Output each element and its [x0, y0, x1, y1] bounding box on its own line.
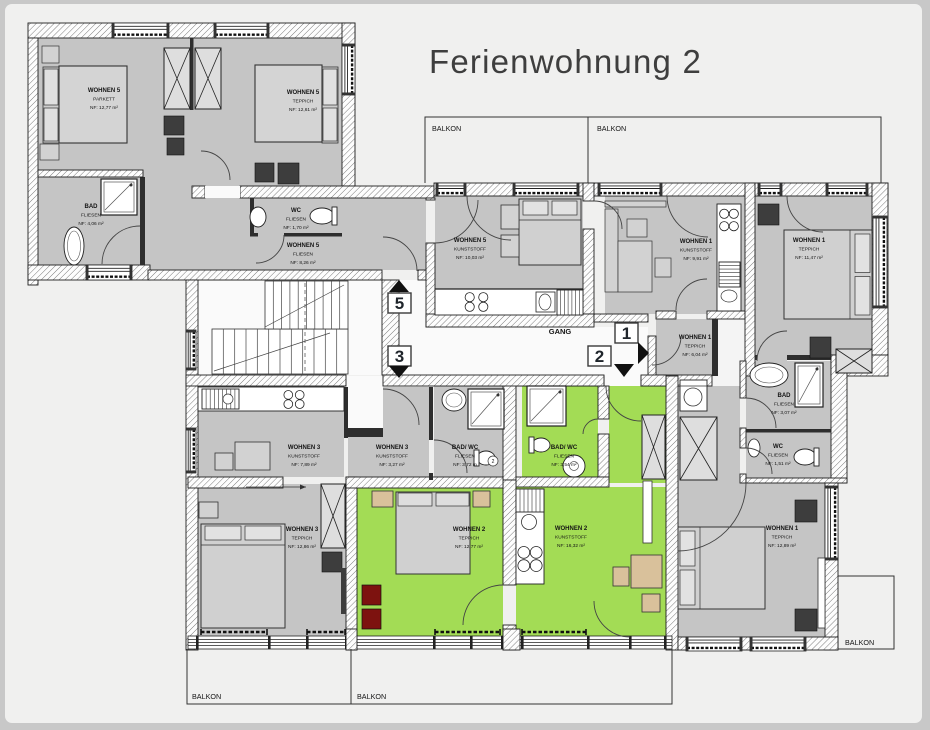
svg-text:WOHNEN 5: WOHNEN 5 — [88, 88, 121, 94]
svg-text:WC: WC — [291, 208, 302, 214]
svg-text:FLIESEN: FLIESEN — [554, 454, 575, 460]
svg-text:PARKETT: PARKETT — [93, 97, 115, 103]
svg-text:FLIESEN: FLIESEN — [455, 454, 476, 460]
svg-text:NF: 12,61 m²: NF: 12,61 m² — [289, 107, 317, 113]
svg-text:BAD/ WC: BAD/ WC — [551, 445, 578, 451]
svg-text:TEPPICH: TEPPICH — [685, 344, 706, 350]
svg-text:WOHNEN 5: WOHNEN 5 — [454, 238, 487, 244]
svg-text:NF: 7,89 m²: NF: 7,89 m² — [291, 462, 317, 468]
svg-text:WOHNEN 2: WOHNEN 2 — [453, 527, 486, 533]
svg-text:NF: 8,26 m²: NF: 8,26 m² — [290, 260, 316, 266]
svg-text:FLIESEN: FLIESEN — [286, 217, 307, 223]
svg-text:WOHNEN 2: WOHNEN 2 — [555, 526, 588, 532]
svg-text:NF: 3,54 m²: NF: 3,54 m² — [551, 462, 577, 468]
svg-text:Ferienwohnung 2: Ferienwohnung 2 — [429, 43, 702, 80]
svg-text:TEPPICH: TEPPICH — [293, 99, 314, 105]
svg-text:WOHNEN 5: WOHNEN 5 — [287, 90, 320, 96]
svg-text:NF: 3,27 m²: NF: 3,27 m² — [379, 462, 405, 468]
svg-text:WOHNEN 5: WOHNEN 5 — [287, 243, 320, 249]
svg-text:WOHNEN 1: WOHNEN 1 — [766, 526, 799, 532]
svg-text:KUNSTSTOFF: KUNSTSTOFF — [555, 535, 587, 541]
svg-text:2: 2 — [492, 459, 495, 465]
svg-text:1: 1 — [622, 324, 631, 343]
svg-text:NF: 3,72 m: NF: 3,72 m — [453, 462, 477, 468]
svg-text:NF: 10,03 m²: NF: 10,03 m² — [456, 255, 484, 261]
svg-text:KUNSTSTOFF: KUNSTSTOFF — [454, 247, 486, 253]
svg-text:WC: WC — [773, 444, 784, 450]
svg-text:NF: 3,07 m²: NF: 3,07 m² — [771, 410, 797, 416]
svg-text:WOHNEN 3: WOHNEN 3 — [286, 527, 319, 533]
svg-text:NF: 1,70 m²: NF: 1,70 m² — [283, 225, 309, 231]
svg-text:BALKON: BALKON — [357, 692, 386, 701]
svg-text:2: 2 — [595, 347, 604, 366]
svg-text:WOHNEN 1: WOHNEN 1 — [679, 335, 712, 341]
svg-text:NF: 6,04 m²: NF: 6,04 m² — [682, 352, 708, 358]
svg-text:NF: 9,91 m²: NF: 9,91 m² — [683, 256, 709, 262]
svg-text:FLIESEN: FLIESEN — [81, 213, 102, 219]
svg-text:BALKON: BALKON — [845, 638, 874, 647]
svg-text:NF: 1,51 m²: NF: 1,51 m² — [765, 461, 791, 467]
svg-text:BALKON: BALKON — [192, 692, 221, 701]
svg-text:NF: 16,32 m²: NF: 16,32 m² — [557, 543, 585, 549]
svg-text:BALKON: BALKON — [597, 124, 626, 133]
svg-text:TEPPICH: TEPPICH — [799, 247, 820, 253]
svg-text:BAD: BAD — [85, 204, 99, 210]
svg-text:NF: 11,47 m²: NF: 11,47 m² — [795, 255, 823, 261]
svg-text:WOHNEN 1: WOHNEN 1 — [680, 239, 713, 245]
svg-text:TEPPICH: TEPPICH — [459, 536, 480, 542]
svg-text:TEPPICH: TEPPICH — [772, 535, 793, 541]
svg-text:TEPPICH: TEPPICH — [292, 536, 313, 542]
svg-text:FLIESEN: FLIESEN — [774, 402, 795, 408]
svg-text:5: 5 — [395, 294, 404, 313]
svg-text:FLIESEN: FLIESEN — [293, 252, 314, 258]
svg-text:NF: 12,77 m²: NF: 12,77 m² — [455, 544, 483, 550]
svg-text:BALKON: BALKON — [432, 124, 461, 133]
svg-text:3: 3 — [395, 347, 404, 366]
svg-text:BAD/ WC: BAD/ WC — [452, 445, 479, 451]
svg-text:NF: 12,89 m²: NF: 12,89 m² — [768, 543, 796, 549]
svg-text:KUNSTSTOFF: KUNSTSTOFF — [288, 454, 320, 460]
svg-text:BAD: BAD — [778, 393, 792, 399]
svg-text:NF: 4,06 m²: NF: 4,06 m² — [78, 221, 104, 227]
svg-text:NF: 12,86 m²: NF: 12,86 m² — [288, 544, 316, 550]
svg-text:WOHNEN 1: WOHNEN 1 — [793, 238, 826, 244]
svg-text:WOHNEN 3: WOHNEN 3 — [376, 445, 409, 451]
svg-text:NF: 12,77 m²: NF: 12,77 m² — [90, 105, 118, 111]
svg-text:KUNSTSTOFF: KUNSTSTOFF — [680, 248, 712, 254]
svg-text:FLIESEN: FLIESEN — [768, 453, 789, 459]
svg-text:KUNSTSTOFF: KUNSTSTOFF — [376, 454, 408, 460]
svg-text:GANG: GANG — [549, 327, 572, 336]
svg-text:WOHNEN 3: WOHNEN 3 — [288, 445, 321, 451]
